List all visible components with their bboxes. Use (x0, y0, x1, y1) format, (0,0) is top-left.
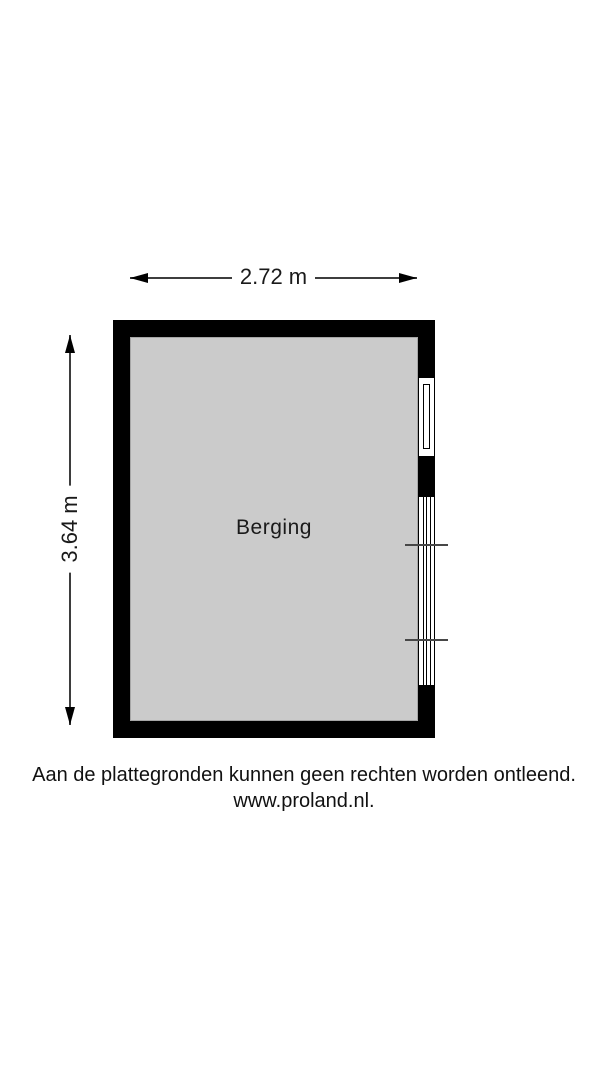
arrowhead-down-icon (65, 707, 75, 725)
arrowhead-up-icon (65, 335, 75, 353)
window-pane-line (423, 497, 424, 685)
disclaimer-text: Aan de plattegronden kunnen geen rechten… (0, 762, 608, 788)
large-window (418, 497, 435, 685)
room-label: Berging (236, 516, 312, 539)
website-text: www.proland.nl. (0, 788, 608, 814)
height-dimension-label: 3.64 m (57, 485, 83, 572)
window-pane-line (430, 497, 431, 685)
width-dimension-label: 2.72 m (232, 264, 315, 290)
floorplan-page: 2.72 m 3.64 m Berging Aan de plattegrond… (0, 0, 608, 1080)
width-dimension-label-wrap: 2.72 m (130, 264, 417, 290)
small-window-pane (423, 384, 430, 449)
window-sill-tick (405, 639, 448, 641)
footer: Aan de plattegronden kunnen geen rechten… (0, 762, 608, 814)
window-pane-line (426, 497, 427, 685)
window-sill-tick (405, 544, 448, 546)
room-label-wrap: Berging (130, 516, 418, 540)
